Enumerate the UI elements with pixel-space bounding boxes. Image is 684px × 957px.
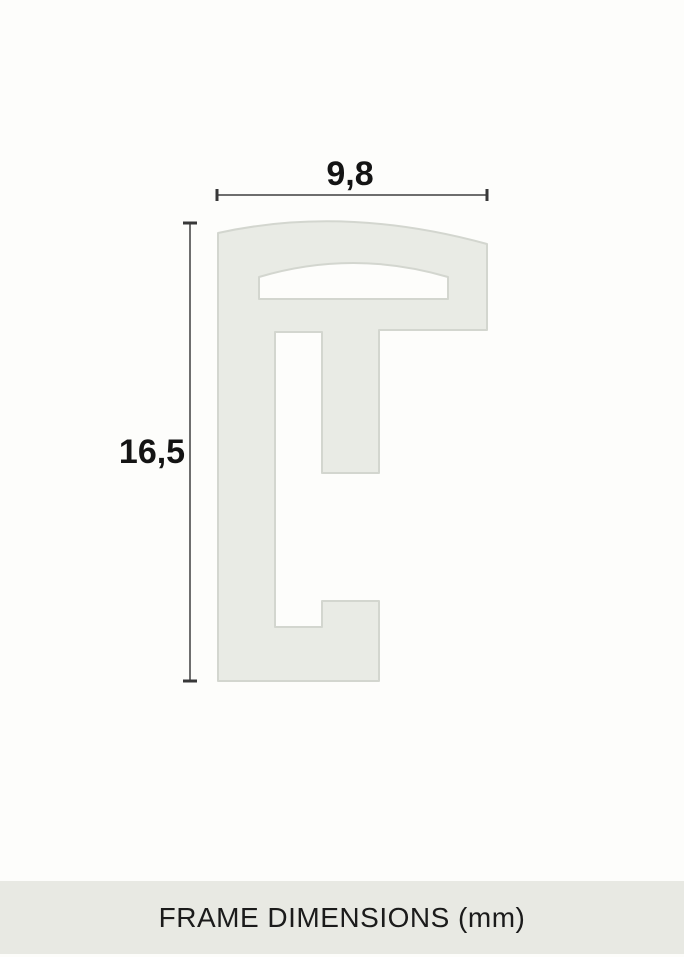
height-dimension-label: 16,5 [119, 433, 185, 471]
footer-caption-bar: FRAME DIMENSIONS (mm) [0, 881, 684, 954]
frame-profile-shape [218, 221, 487, 681]
height-dimension: 16,5 [119, 223, 197, 682]
footer-caption: FRAME DIMENSIONS (mm) [159, 902, 526, 934]
width-dimension: 9,8 [217, 155, 487, 201]
diagram-area: 9,8 16,5 [0, 0, 684, 881]
width-dimension-label: 9,8 [326, 155, 373, 193]
frame-profile-diagram: 9,8 16,5 [0, 0, 684, 881]
frame-dimensions-page: 9,8 16,5 FRAME DIMENSIONS (mm) [0, 0, 684, 957]
